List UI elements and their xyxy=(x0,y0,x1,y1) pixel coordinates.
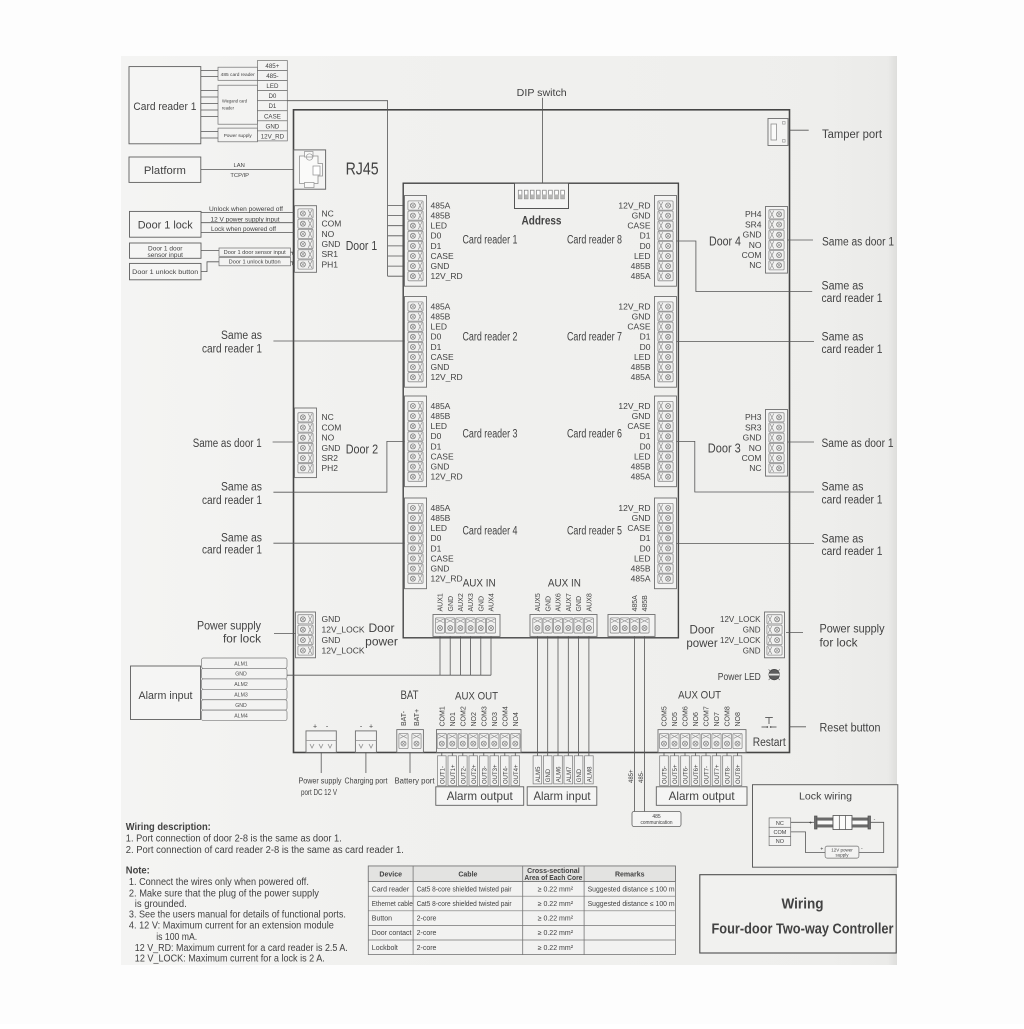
svg-text:Lock wiring: Lock wiring xyxy=(799,791,852,803)
svg-text:Alarm input: Alarm input xyxy=(139,690,193,702)
svg-text:485-: 485- xyxy=(266,73,278,80)
svg-text:D0: D0 xyxy=(640,543,651,553)
svg-text:is grounded.: is grounded. xyxy=(135,899,187,910)
svg-text:NC: NC xyxy=(749,260,761,270)
svg-text:PH2: PH2 xyxy=(322,463,339,473)
svg-text:485B: 485B xyxy=(642,595,649,612)
svg-text:+: + xyxy=(313,724,317,731)
svg-text:Same as: Same as xyxy=(822,332,864,344)
svg-text:+: + xyxy=(820,847,823,853)
svg-text:2-core: 2-core xyxy=(417,945,437,952)
svg-text:Same as: Same as xyxy=(822,482,864,494)
svg-text:AUX2: AUX2 xyxy=(458,593,465,611)
svg-text:GND: GND xyxy=(743,433,762,443)
svg-text:CASE: CASE xyxy=(431,352,454,362)
svg-text:card reader 1: card reader 1 xyxy=(822,546,883,558)
svg-text:ALM8: ALM8 xyxy=(587,766,593,782)
svg-text:LED: LED xyxy=(634,451,651,461)
svg-text:GND: GND xyxy=(431,564,450,574)
svg-text:D0: D0 xyxy=(431,332,442,342)
svg-text:ALM7: ALM7 xyxy=(567,766,573,782)
svg-text:OUT7+: OUT7+ xyxy=(715,764,721,784)
svg-text:OUT8-: OUT8- xyxy=(726,766,732,784)
svg-text:CASE: CASE xyxy=(627,322,650,332)
svg-text:NO: NO xyxy=(776,839,785,845)
svg-text:1. Port connection of door 2-8: 1. Port connection of door 2-8 is the sa… xyxy=(126,834,342,845)
svg-text:485B: 485B xyxy=(431,411,451,421)
svg-text:AUX6: AUX6 xyxy=(556,593,563,611)
svg-text:GND: GND xyxy=(743,626,761,635)
svg-text:D0: D0 xyxy=(431,431,442,441)
svg-text:12V_RD: 12V_RD xyxy=(431,574,463,584)
svg-text:supply: supply xyxy=(835,853,849,858)
svg-text:Address: Address xyxy=(522,214,562,228)
svg-text:for lock: for lock xyxy=(223,632,262,646)
svg-text:card reader 1: card reader 1 xyxy=(822,495,883,507)
svg-text:AUX OUT: AUX OUT xyxy=(678,690,721,702)
svg-text:Same as door 1: Same as door 1 xyxy=(822,236,894,248)
svg-text:Door: Door xyxy=(368,621,394,635)
svg-text:485: 485 xyxy=(652,814,661,820)
svg-text:GND: GND xyxy=(448,596,455,612)
svg-text:12V_LOCK: 12V_LOCK xyxy=(720,636,761,645)
svg-text:2. Port connection of card rea: 2. Port connection of card reader 2-8 is… xyxy=(126,845,404,856)
svg-text:GND: GND xyxy=(235,703,247,709)
svg-text:D1: D1 xyxy=(431,241,442,251)
svg-text:GND: GND xyxy=(632,312,651,322)
svg-text:Tamper port: Tamper port xyxy=(822,129,883,141)
svg-text:D1: D1 xyxy=(431,543,442,553)
svg-text:Power supply: Power supply xyxy=(224,133,253,139)
svg-text:Power supply: Power supply xyxy=(197,619,261,633)
svg-text:Card reader 4: Card reader 4 xyxy=(463,526,518,538)
svg-text:D1: D1 xyxy=(431,441,442,451)
svg-text:LED: LED xyxy=(634,251,651,261)
svg-text:Unlock when powered off: Unlock when powered off xyxy=(209,207,283,213)
svg-text:OUT5+: OUT5+ xyxy=(673,764,679,784)
svg-text:CASE: CASE xyxy=(431,553,454,563)
svg-text:OUT3-: OUT3- xyxy=(482,766,488,784)
svg-text:Button: Button xyxy=(372,916,392,923)
svg-text:12V_RD: 12V_RD xyxy=(618,200,650,210)
svg-text:GND: GND xyxy=(322,443,341,453)
svg-text:OUT2-: OUT2- xyxy=(461,766,467,784)
svg-text:communication: communication xyxy=(641,820,673,826)
svg-text:NO4: NO4 xyxy=(513,712,520,727)
svg-text:TCP/IP: TCP/IP xyxy=(230,173,249,179)
svg-text:485A: 485A xyxy=(631,271,651,281)
svg-text:SR2: SR2 xyxy=(322,453,339,463)
svg-text:GND: GND xyxy=(266,123,280,130)
svg-text:12V_RD: 12V_RD xyxy=(431,472,463,482)
svg-text:485A: 485A xyxy=(431,401,451,411)
svg-text:Same as: Same as xyxy=(822,281,864,293)
svg-text:Card reader 8: Card reader 8 xyxy=(567,235,622,247)
svg-text:for lock: for lock xyxy=(820,635,859,649)
svg-text:Card reader 1: Card reader 1 xyxy=(463,235,518,247)
svg-text:Reset button: Reset button xyxy=(820,723,881,735)
svg-text:AUX5: AUX5 xyxy=(535,593,542,611)
svg-text:Cat5 8-core shielded twisted p: Cat5 8-core shielded twisted pair xyxy=(417,886,513,893)
svg-text:Power supply: Power supply xyxy=(299,777,342,786)
svg-text:OUT6+: OUT6+ xyxy=(694,764,700,784)
svg-text:GND: GND xyxy=(632,513,651,523)
svg-text:PH4: PH4 xyxy=(745,209,762,219)
svg-text:sensor input: sensor input xyxy=(147,252,183,259)
svg-text:COM8: COM8 xyxy=(725,706,732,726)
svg-text:GND: GND xyxy=(478,596,485,612)
svg-text:12V_LOCK: 12V_LOCK xyxy=(720,615,761,624)
svg-text:Wiring description:: Wiring description: xyxy=(126,821,211,833)
svg-text:485 card reader: 485 card reader xyxy=(221,72,255,78)
svg-text:AUX7: AUX7 xyxy=(566,593,573,611)
svg-text:12V_RD: 12V_RD xyxy=(618,503,650,513)
svg-text:OUT4+: OUT4+ xyxy=(514,764,520,784)
svg-text:Cable: Cable xyxy=(458,872,477,879)
svg-text:12V_RD: 12V_RD xyxy=(431,271,463,281)
svg-text:AUX IN: AUX IN xyxy=(548,578,581,590)
svg-text:AUX4: AUX4 xyxy=(489,593,496,611)
svg-text:485-: 485- xyxy=(639,771,645,783)
svg-text:485B: 485B xyxy=(631,564,651,574)
svg-text:PH3: PH3 xyxy=(745,412,762,422)
svg-text:Door 2: Door 2 xyxy=(346,442,379,457)
svg-text:NO5: NO5 xyxy=(672,712,679,727)
svg-text:≥ 0.22 mm²: ≥ 0.22 mm² xyxy=(538,886,574,893)
svg-text:Alarm output: Alarm output xyxy=(669,789,736,803)
svg-text:485B: 485B xyxy=(631,462,651,472)
svg-text:OUT4-: OUT4- xyxy=(503,766,509,784)
svg-text:Alarm output: Alarm output xyxy=(447,789,514,803)
svg-text:OUT1+: OUT1+ xyxy=(451,764,457,784)
svg-text:NC: NC xyxy=(776,821,784,827)
svg-text:D1: D1 xyxy=(268,103,276,110)
svg-text:Door 3: Door 3 xyxy=(708,441,741,456)
svg-text:COM: COM xyxy=(322,422,342,432)
svg-text:OUT5-: OUT5- xyxy=(663,766,669,784)
svg-text:Same as: Same as xyxy=(221,533,262,545)
svg-text:≥ 0.22 mm²: ≥ 0.22 mm² xyxy=(538,930,574,937)
svg-text:Ethernet cable: Ethernet cable xyxy=(372,901,413,908)
svg-text:485A: 485A xyxy=(631,472,651,482)
svg-text:Door: Door xyxy=(690,625,715,637)
svg-text:485+: 485+ xyxy=(265,63,279,70)
svg-text:2-core: 2-core xyxy=(417,930,437,937)
svg-text:AUX IN: AUX IN xyxy=(463,578,496,590)
svg-text:ALM5: ALM5 xyxy=(536,766,542,782)
svg-text:CASE: CASE xyxy=(627,221,650,231)
svg-text:12V_RD: 12V_RD xyxy=(618,401,650,411)
svg-text:Card reader 1: Card reader 1 xyxy=(133,101,196,113)
svg-text:Device: Device xyxy=(379,872,402,879)
svg-text:Card reader 3: Card reader 3 xyxy=(463,429,518,441)
svg-text:CASE: CASE xyxy=(431,251,454,261)
svg-text:Card reader 5: Card reader 5 xyxy=(567,526,622,538)
svg-text:485A: 485A xyxy=(632,595,639,612)
svg-text:+: + xyxy=(369,724,373,731)
svg-text:12 V_RD: Maximum current for a: 12 V_RD: Maximum current for a card read… xyxy=(135,943,348,954)
svg-text:COM7: COM7 xyxy=(704,706,711,726)
svg-text:power: power xyxy=(365,635,398,649)
svg-text:NO: NO xyxy=(322,433,335,443)
svg-text:PH1: PH1 xyxy=(322,259,339,269)
svg-text:D1: D1 xyxy=(640,533,651,543)
svg-text:ALM2: ALM2 xyxy=(234,682,248,688)
svg-text:RJ45: RJ45 xyxy=(346,159,379,179)
svg-text:SR3: SR3 xyxy=(745,422,762,432)
svg-text:Door 1: Door 1 xyxy=(346,238,378,253)
svg-text:D1: D1 xyxy=(431,342,442,352)
svg-text:COM5: COM5 xyxy=(662,706,669,726)
svg-text:ALM1: ALM1 xyxy=(234,661,248,667)
svg-text:CASE: CASE xyxy=(431,451,454,461)
svg-text:1. Connect the wires only when: 1. Connect the wires only when powered o… xyxy=(129,877,309,888)
svg-text:LED: LED xyxy=(634,352,651,362)
svg-text:D0: D0 xyxy=(640,241,651,251)
svg-text:power: power xyxy=(686,638,717,650)
svg-text:3. See the users manual for de: 3. See the users manual for details of f… xyxy=(129,910,346,921)
svg-text:OUT2+: OUT2+ xyxy=(472,764,478,784)
svg-text:485A: 485A xyxy=(431,301,451,311)
svg-text:D0: D0 xyxy=(268,93,276,100)
svg-text:SR4: SR4 xyxy=(745,219,762,229)
svg-text:LED: LED xyxy=(431,421,448,431)
svg-text:≥ 0.22 mm²: ≥ 0.22 mm² xyxy=(538,916,574,923)
svg-text:Door 1 lock: Door 1 lock xyxy=(138,220,193,232)
svg-text:OUT7-: OUT7- xyxy=(705,766,711,784)
svg-text:D0: D0 xyxy=(640,342,651,352)
svg-text:Wiegand card: Wiegand card xyxy=(222,99,247,105)
svg-text:ALM6: ALM6 xyxy=(557,766,563,782)
svg-text:Door 4: Door 4 xyxy=(709,234,741,249)
svg-text:SR1: SR1 xyxy=(322,249,339,259)
svg-text:GND: GND xyxy=(632,411,651,421)
svg-text:OUT3+: OUT3+ xyxy=(493,764,499,784)
svg-text:≥ 0.22 mm²: ≥ 0.22 mm² xyxy=(538,945,574,952)
svg-text:GND: GND xyxy=(235,672,247,678)
svg-text:Wiring: Wiring xyxy=(782,897,824,913)
svg-text:GND: GND xyxy=(322,614,341,624)
svg-text:4. 12 V: Maximum current for a: 4. 12 V: Maximum current for an extensio… xyxy=(129,921,334,932)
svg-text:GND: GND xyxy=(743,230,762,240)
svg-text:485B: 485B xyxy=(631,362,651,372)
svg-text:LED: LED xyxy=(431,221,448,231)
svg-text:AUX OUT: AUX OUT xyxy=(455,691,498,703)
svg-text:AUX8: AUX8 xyxy=(587,593,594,611)
svg-text:GND: GND xyxy=(546,768,552,782)
svg-text:NC: NC xyxy=(749,463,761,473)
svg-text:BAT-: BAT- xyxy=(401,710,408,726)
svg-text:Battery port: Battery port xyxy=(395,777,436,786)
svg-text:COM: COM xyxy=(742,250,762,260)
svg-text:COM: COM xyxy=(742,453,762,463)
svg-text:NO: NO xyxy=(749,443,762,453)
svg-text:D1: D1 xyxy=(640,231,651,241)
svg-text:Restart: Restart xyxy=(753,737,787,749)
svg-text:D0: D0 xyxy=(640,441,651,451)
svg-text:ALM4: ALM4 xyxy=(234,713,248,719)
svg-text:AUX3: AUX3 xyxy=(468,593,475,611)
svg-text:NO6: NO6 xyxy=(693,712,700,727)
svg-text:Door 1 door sensor input: Door 1 door sensor input xyxy=(224,250,287,256)
svg-text:NC: NC xyxy=(322,208,334,218)
svg-text:Same as: Same as xyxy=(221,330,262,342)
svg-text:D1: D1 xyxy=(640,332,651,342)
svg-text:GND: GND xyxy=(545,596,552,612)
svg-text:NO3: NO3 xyxy=(492,712,499,727)
svg-text:12V_RD: 12V_RD xyxy=(618,301,650,311)
svg-text:12 V power supply input: 12 V power supply input xyxy=(211,217,280,223)
svg-text:is 100 mA.: is 100 mA. xyxy=(156,932,197,943)
svg-text:GND: GND xyxy=(322,239,341,249)
svg-text:CASE: CASE xyxy=(627,421,650,431)
svg-text:COM3: COM3 xyxy=(481,706,488,726)
svg-text:GND: GND xyxy=(632,211,651,221)
svg-text:12 V_LOCK: Maximum current for: 12 V_LOCK: Maximum current for a lock is… xyxy=(135,953,325,964)
svg-text:COM4: COM4 xyxy=(502,706,509,726)
svg-text:Door contact: Door contact xyxy=(372,930,412,937)
svg-text:COM: COM xyxy=(322,219,342,229)
svg-text:12V_RD: 12V_RD xyxy=(261,133,285,140)
svg-text:COM2: COM2 xyxy=(460,706,467,726)
svg-text:485B: 485B xyxy=(431,312,451,322)
svg-text:485B: 485B xyxy=(431,211,451,221)
svg-text:D0: D0 xyxy=(431,231,442,241)
svg-text:GND: GND xyxy=(431,261,450,271)
svg-text:Card reader: Card reader xyxy=(372,886,410,893)
svg-text:485B: 485B xyxy=(631,261,651,271)
svg-text:NO: NO xyxy=(322,229,335,239)
svg-text:Card reader 7: Card reader 7 xyxy=(567,332,622,344)
svg-text:COM6: COM6 xyxy=(683,706,690,726)
svg-text:Note:: Note: xyxy=(126,865,150,877)
svg-text:Charging port: Charging port xyxy=(345,777,389,786)
svg-text:DIP switch: DIP switch xyxy=(517,87,567,99)
svg-text:LED: LED xyxy=(431,523,448,533)
svg-text:OUT8+: OUT8+ xyxy=(736,764,742,784)
svg-text:Four-door Two-way Controller: Four-door Two-way Controller xyxy=(712,922,894,938)
svg-text:card reader 1: card reader 1 xyxy=(202,495,262,507)
svg-text:D0: D0 xyxy=(431,533,442,543)
svg-text:Remarks: Remarks xyxy=(615,872,645,879)
svg-text:card reader 1: card reader 1 xyxy=(822,293,883,305)
svg-text:reader: reader xyxy=(222,106,234,112)
svg-text:Power LED: Power LED xyxy=(718,671,761,683)
svg-text:Door 1 unlock button: Door 1 unlock button xyxy=(229,260,281,266)
svg-text:COM1: COM1 xyxy=(439,706,446,726)
svg-text:GND: GND xyxy=(431,462,450,472)
svg-text:Suggested distance ≤ 100 m: Suggested distance ≤ 100 m xyxy=(588,886,675,893)
svg-text:Lockbolt: Lockbolt xyxy=(372,945,398,952)
svg-text:NO1: NO1 xyxy=(450,712,457,727)
svg-text:Platform: Platform xyxy=(144,165,186,177)
svg-text:LED: LED xyxy=(634,553,651,563)
svg-text:Card reader 6: Card reader 6 xyxy=(567,429,622,441)
svg-text:ALM3: ALM3 xyxy=(234,693,248,699)
svg-text:12V_LOCK: 12V_LOCK xyxy=(322,645,365,655)
svg-text:OUT6-: OUT6- xyxy=(684,766,690,784)
svg-text:Power supply: Power supply xyxy=(820,622,885,636)
svg-text:485A: 485A xyxy=(431,200,451,210)
svg-text:12V_LOCK: 12V_LOCK xyxy=(322,625,365,635)
svg-text:Same as: Same as xyxy=(822,533,864,545)
svg-text:GND: GND xyxy=(577,768,583,782)
svg-text:Card reader 2: Card reader 2 xyxy=(463,332,518,344)
svg-text:BAT: BAT xyxy=(401,690,419,702)
svg-text:2-core: 2-core xyxy=(417,916,437,923)
svg-text:NO7: NO7 xyxy=(714,712,721,727)
svg-text:AUX1: AUX1 xyxy=(438,593,445,611)
svg-text:485+: 485+ xyxy=(629,769,635,783)
svg-text:NO: NO xyxy=(749,240,762,250)
svg-text:COM: COM xyxy=(773,830,786,836)
svg-text:12V_RD: 12V_RD xyxy=(431,372,463,382)
svg-text:NO2: NO2 xyxy=(471,712,478,727)
svg-text:D1: D1 xyxy=(640,431,651,441)
svg-text:NC: NC xyxy=(322,412,334,422)
svg-text:GND: GND xyxy=(431,362,450,372)
svg-text:card reader 1: card reader 1 xyxy=(202,545,262,557)
svg-text:Lock when powered off: Lock when powered off xyxy=(211,227,276,233)
svg-text:485B: 485B xyxy=(431,513,451,523)
svg-text:Suggested distance ≤ 100 m: Suggested distance ≤ 100 m xyxy=(588,901,675,908)
svg-text:Alarm input: Alarm input xyxy=(534,789,592,803)
svg-text:485A: 485A xyxy=(631,372,651,382)
svg-text:Same as door 1: Same as door 1 xyxy=(822,438,894,450)
svg-text:Same as door 1: Same as door 1 xyxy=(193,438,262,450)
svg-text:LED: LED xyxy=(266,83,279,90)
svg-text:≥ 0.22 mm²: ≥ 0.22 mm² xyxy=(538,901,574,908)
svg-text:+: + xyxy=(809,821,812,827)
svg-text:card reader 1: card reader 1 xyxy=(202,344,262,356)
svg-text:Cat5 8-core shielded twisted p: Cat5 8-core shielded twisted pair xyxy=(417,901,513,908)
svg-text:GND: GND xyxy=(576,596,583,612)
svg-text:CASE: CASE xyxy=(627,523,650,533)
svg-text:CASE: CASE xyxy=(264,113,281,120)
svg-text:Same as: Same as xyxy=(221,482,262,494)
svg-text:485A: 485A xyxy=(431,503,451,513)
svg-text:LAN: LAN xyxy=(234,163,245,169)
svg-text:OUT1-: OUT1- xyxy=(440,766,446,784)
svg-text:Area of Each Core: Area of Each Core xyxy=(524,875,582,882)
svg-text:NO8: NO8 xyxy=(735,712,742,727)
svg-text:Door 1 unlock button: Door 1 unlock button xyxy=(132,269,198,276)
svg-text:BAT+: BAT+ xyxy=(414,709,421,726)
svg-text:2. Make sure that the plug of: 2. Make sure that the plug of the power … xyxy=(129,889,319,900)
svg-text:port DC 12 V: port DC 12 V xyxy=(301,788,338,797)
svg-text:485A: 485A xyxy=(631,574,651,584)
svg-text:GND: GND xyxy=(743,646,761,655)
svg-text:LED: LED xyxy=(431,322,448,332)
svg-text:GND: GND xyxy=(322,635,341,645)
svg-text:card reader 1: card reader 1 xyxy=(822,344,883,356)
